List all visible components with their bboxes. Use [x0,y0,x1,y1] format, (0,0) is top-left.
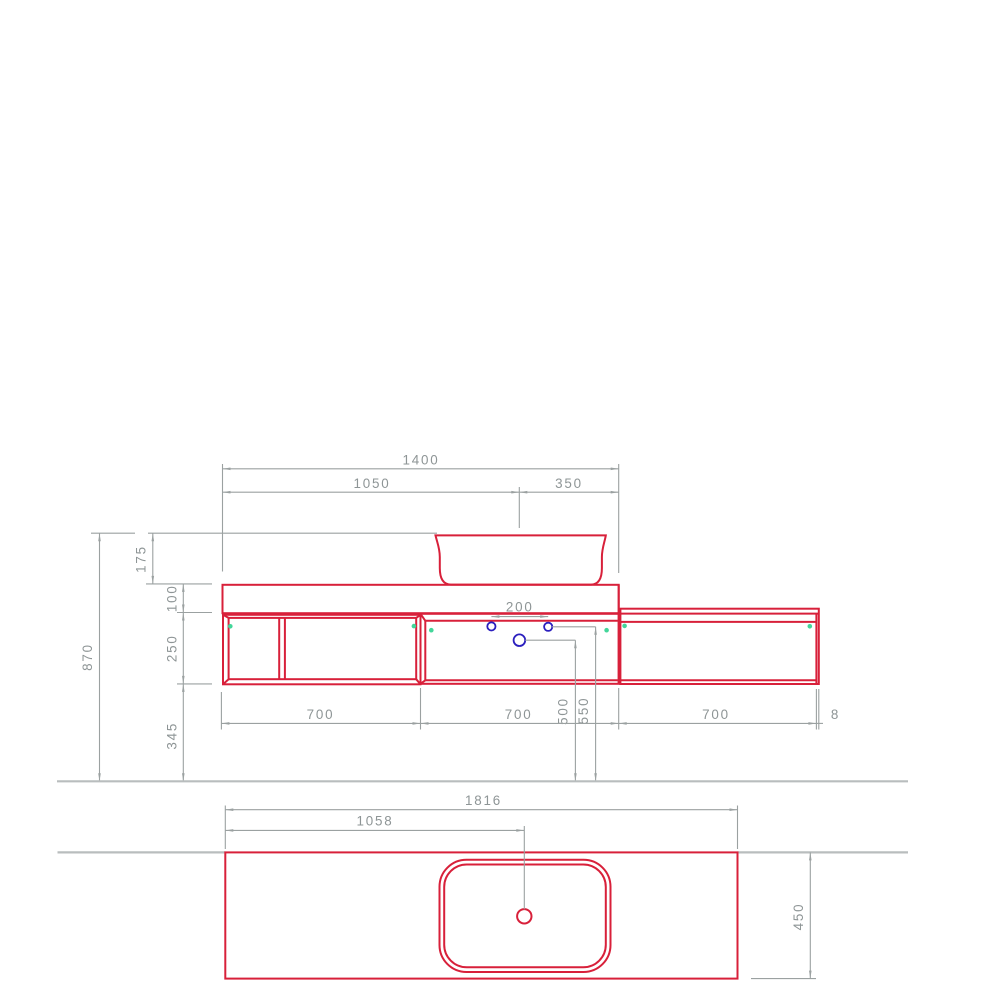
svg-text:1400: 1400 [403,453,440,468]
svg-text:700: 700 [505,707,533,722]
svg-text:1050: 1050 [354,476,391,491]
svg-text:700: 700 [307,707,335,722]
svg-text:500: 500 [556,697,571,725]
svg-text:200: 200 [506,599,534,614]
svg-text:550: 550 [576,697,591,725]
svg-text:250: 250 [164,634,179,662]
svg-text:870: 870 [80,643,95,671]
svg-text:8: 8 [831,707,840,722]
svg-text:1058: 1058 [357,814,394,829]
svg-text:100: 100 [164,584,179,612]
svg-text:345: 345 [164,722,179,750]
svg-text:175: 175 [134,545,149,573]
svg-text:350: 350 [555,476,583,491]
svg-text:1816: 1816 [465,793,502,808]
svg-text:700: 700 [702,707,730,722]
svg-text:450: 450 [791,903,806,931]
